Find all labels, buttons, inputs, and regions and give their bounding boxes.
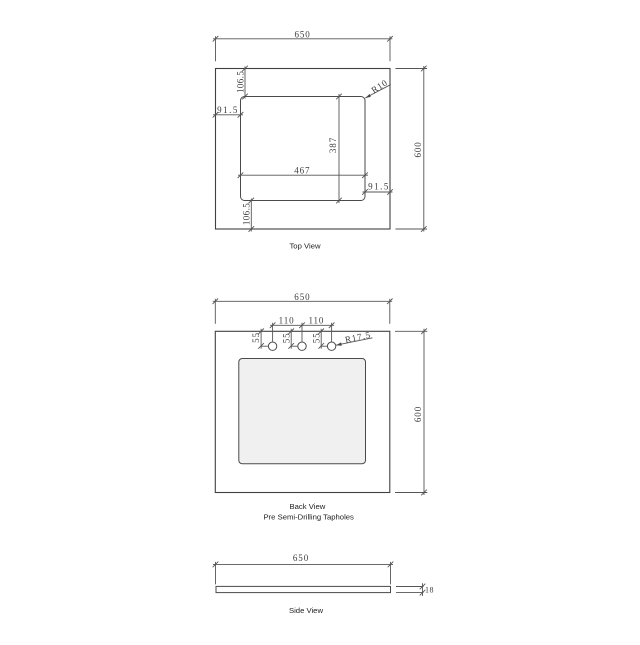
svg-text:600: 600 bbox=[413, 406, 423, 422]
svg-text:106.5: 106.5 bbox=[235, 71, 245, 93]
svg-text:Side View: Side View bbox=[289, 606, 323, 615]
svg-text:91.5: 91.5 bbox=[217, 105, 239, 115]
svg-text:106.5: 106.5 bbox=[242, 203, 252, 225]
svg-text:650: 650 bbox=[294, 30, 310, 40]
svg-text:Back View: Back View bbox=[290, 502, 326, 511]
svg-text:110: 110 bbox=[308, 316, 324, 326]
svg-text:18: 18 bbox=[425, 586, 434, 595]
svg-text:467: 467 bbox=[294, 166, 310, 176]
svg-text:650: 650 bbox=[293, 553, 309, 563]
svg-text:110: 110 bbox=[279, 316, 295, 326]
svg-text:600: 600 bbox=[413, 141, 423, 157]
svg-text:55: 55 bbox=[281, 332, 291, 343]
svg-text:Pre Semi-Drilling Tapholes: Pre Semi-Drilling Tapholes bbox=[263, 513, 354, 522]
svg-text:91.5: 91.5 bbox=[368, 182, 390, 192]
svg-text:650: 650 bbox=[294, 292, 310, 302]
svg-text:55: 55 bbox=[311, 332, 321, 343]
svg-text:55: 55 bbox=[251, 332, 261, 343]
svg-text:Top View: Top View bbox=[289, 241, 321, 250]
svg-text:387: 387 bbox=[328, 137, 338, 153]
